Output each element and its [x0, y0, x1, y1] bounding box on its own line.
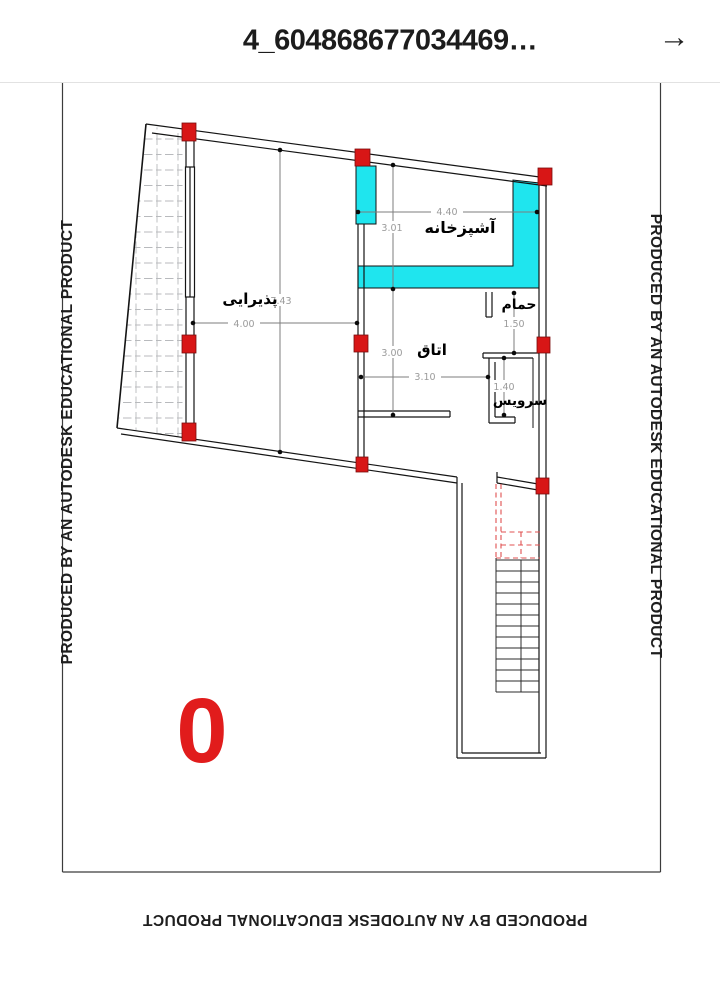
column-marker — [182, 123, 196, 141]
column-marker — [355, 149, 370, 166]
header-bar: 4_604868677034469… → — [0, 0, 720, 83]
room-label-kitchen: آشپزخانه — [425, 217, 496, 238]
column-marker — [354, 335, 368, 352]
dimension-wc-height: 1.40 — [493, 382, 514, 393]
room-label-living: پذیرایی — [222, 290, 277, 309]
column-marker — [538, 168, 552, 185]
forward-arrow-button[interactable]: → — [650, 13, 698, 61]
dimension-room-height: 3.00 — [381, 348, 402, 359]
staircase — [496, 484, 540, 692]
watermark-right: PRODUCED BY AN AUTODESK EDUCATIONAL PROD… — [647, 214, 664, 659]
column-marker — [356, 457, 368, 472]
floorplan-viewer[interactable]: PRODUCED BY AN AUTODESK EDUCATIONAL PROD… — [0, 0, 720, 990]
column-marker — [537, 337, 550, 353]
dimension-room-width: 3.10 — [414, 372, 435, 383]
column-marker — [536, 478, 549, 494]
dimension-kitchen-height: 3.01 — [381, 223, 402, 234]
watermark-left: PRODUCED BY AN AUTODESK EDUCATIONAL PROD… — [59, 220, 76, 665]
app-screen: 4_604868677034469… → PRODUCED BY AN AUTO… — [0, 0, 720, 990]
dimension-living-width: 4.00 — [233, 319, 254, 330]
watermark-bottom: PRODUCED BY AN AUTODESK EDUCATIONAL PROD… — [143, 911, 588, 928]
room-label-bathroom: حمام — [502, 297, 537, 313]
dimension-bathroom-height: 1.50 — [503, 319, 524, 330]
hatched-area — [118, 126, 186, 438]
dimension-kitchen-width: 4.40 — [436, 207, 457, 218]
highlight-wall-strip — [356, 166, 376, 224]
column-marker — [182, 335, 196, 353]
staircase-steps — [496, 558, 539, 692]
staircase-dashed — [496, 484, 540, 558]
room-label-room: اتاق — [417, 341, 447, 359]
file-title: 4_604868677034469… — [243, 25, 537, 58]
column-marker — [182, 423, 196, 441]
floor-number: 0 — [176, 680, 227, 782]
room-label-wc: سرویس — [493, 393, 547, 409]
